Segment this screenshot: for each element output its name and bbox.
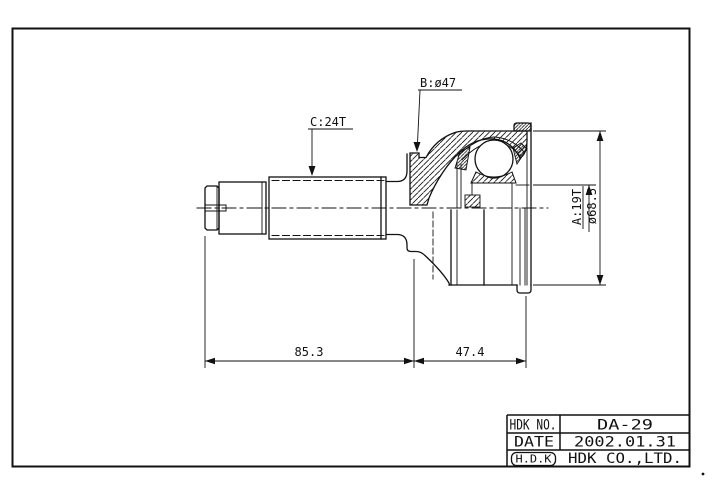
arrowhead <box>414 358 424 364</box>
title-block-row-company: H.D.K HDK CO.,LTD. <box>512 451 683 467</box>
cv-joint-technical-drawing: B:ø47 C:24T A:19T ø68.5 <box>0 0 720 480</box>
title-block: HDK NO. DA-29 DATE 2002.01.31 H.D.K HDK … <box>507 415 689 467</box>
stray-dot <box>702 473 705 476</box>
label-length-shaft: 85.3 <box>295 345 324 359</box>
label-outer-diameter: ø68.5 <box>585 188 599 224</box>
arrowhead <box>414 142 421 152</box>
arrowhead <box>404 358 414 364</box>
dim-lengths: 85.3 47.4 <box>205 236 526 368</box>
title-block-row-part-no: HDK NO. DA-29 <box>510 418 654 434</box>
bearing-ball <box>475 140 513 178</box>
arrowhead <box>597 275 604 285</box>
title-value-part-number: DA-29 <box>597 418 653 434</box>
label-spline-b: B:ø47 <box>420 76 456 90</box>
face-ring-tab <box>514 123 531 131</box>
arrowhead <box>205 358 215 364</box>
cv-joint-part <box>197 123 548 293</box>
arrowhead <box>309 166 316 176</box>
hdk-logo-text: H.D.K <box>516 454 553 466</box>
title-block-row-date: DATE 2002.01.31 <box>514 435 676 451</box>
label-length-joint: 47.4 <box>456 345 485 359</box>
title-label-hdk-no: HDK NO. <box>510 418 557 434</box>
dim-spline-c: C:24T <box>308 115 353 176</box>
drawing-page: B:ø47 C:24T A:19T ø68.5 <box>0 0 720 480</box>
title-label-date: DATE <box>514 435 554 451</box>
title-value-company: HDK CO.,LTD. <box>568 451 682 467</box>
arrowhead <box>516 358 526 364</box>
dimensions: B:ø47 C:24T A:19T ø68.5 <box>205 76 606 368</box>
inner-race-hub-section <box>465 195 480 207</box>
sheet-frame <box>13 29 705 476</box>
border-frame <box>13 29 690 467</box>
title-value-date: 2002.01.31 <box>574 435 676 451</box>
dim-outer-diameter: A:19T ø68.5 <box>533 131 606 285</box>
arrowhead <box>597 131 604 141</box>
label-spline-a: A:19T <box>570 189 584 225</box>
outer-race-section <box>410 123 531 284</box>
label-spline-c: C:24T <box>310 115 346 129</box>
